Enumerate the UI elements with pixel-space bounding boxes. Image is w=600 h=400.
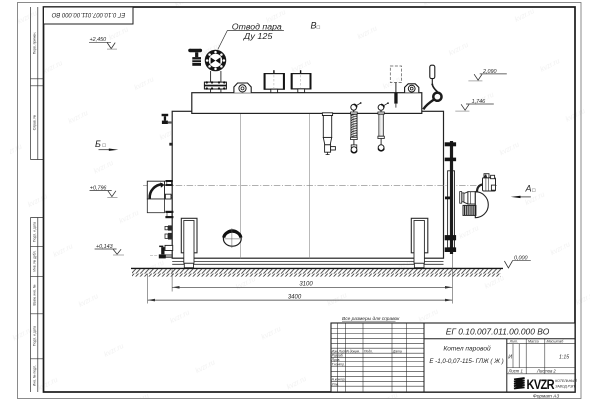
svg-text:КОТЕЛЬНЫЙ: КОТЕЛЬНЫЙ	[555, 379, 577, 383]
svg-text:Перв. примен.: Перв. примен.	[32, 32, 36, 55]
svg-text:Ду 125: Ду 125	[243, 32, 273, 41]
svg-text:3400: 3400	[288, 294, 302, 300]
svg-text:N докум.: N докум.	[347, 349, 360, 353]
svg-text:Н.контр.: Н.контр.	[332, 378, 346, 382]
svg-text:KVZR: KVZR	[527, 377, 555, 393]
svg-text:Лит.: Лит.	[509, 340, 518, 344]
svg-text:Листов 2: Листов 2	[536, 368, 556, 373]
svg-text:Т.контр.: Т.контр.	[332, 363, 345, 367]
svg-text:Котел паровой: Котел паровой	[443, 345, 491, 353]
svg-text:ЕГ 0.10.007.011.00.000 ВО: ЕГ 0.10.007.011.00.000 ВО	[52, 11, 126, 18]
svg-text:ЗАВОД РЭП: ЗАВОД РЭП	[555, 385, 575, 389]
svg-text:ЕГ 0.10.007.011.00.000 ВО: ЕГ 0.10.007.011.00.000 ВО	[446, 327, 550, 337]
svg-text:Дата: Дата	[392, 349, 402, 353]
svg-text:Инв. № дубл.: Инв. № дубл.	[32, 250, 36, 271]
svg-text:1:15: 1:15	[559, 355, 569, 361]
svg-text:Подп. и дата: Подп. и дата	[32, 326, 36, 346]
svg-text:Формат А3: Формат А3	[533, 394, 560, 400]
svg-text:Пров.: Пров.	[332, 358, 341, 362]
svg-text:Изм.Лист: Изм.Лист	[332, 349, 348, 353]
svg-text:Лист 1: Лист 1	[508, 368, 523, 373]
svg-text:Е -1,0-0,07-115- ГЛЖ ( Ж ): Е -1,0-0,07-115- ГЛЖ ( Ж )	[429, 358, 503, 365]
svg-text:Подп.: Подп.	[364, 349, 373, 353]
svg-text:И: И	[508, 354, 512, 360]
svg-text:Подп. и дата: Подп. и дата	[32, 222, 36, 242]
svg-text:Инв. № подл.: Инв. № подл.	[32, 365, 36, 386]
svg-text:Масса: Масса	[528, 340, 539, 344]
svg-text:Утв.: Утв.	[332, 383, 340, 387]
svg-text:Масштаб: Масштаб	[547, 340, 565, 344]
svg-text:Взам. инв. №: Взам. инв. №	[32, 284, 36, 305]
svg-text:А: А	[525, 183, 532, 193]
svg-text:Б: Б	[95, 139, 101, 149]
svg-text:В: В	[311, 20, 317, 30]
svg-text:Справ. №: Справ. №	[32, 114, 36, 130]
svg-text:3100: 3100	[299, 281, 313, 287]
